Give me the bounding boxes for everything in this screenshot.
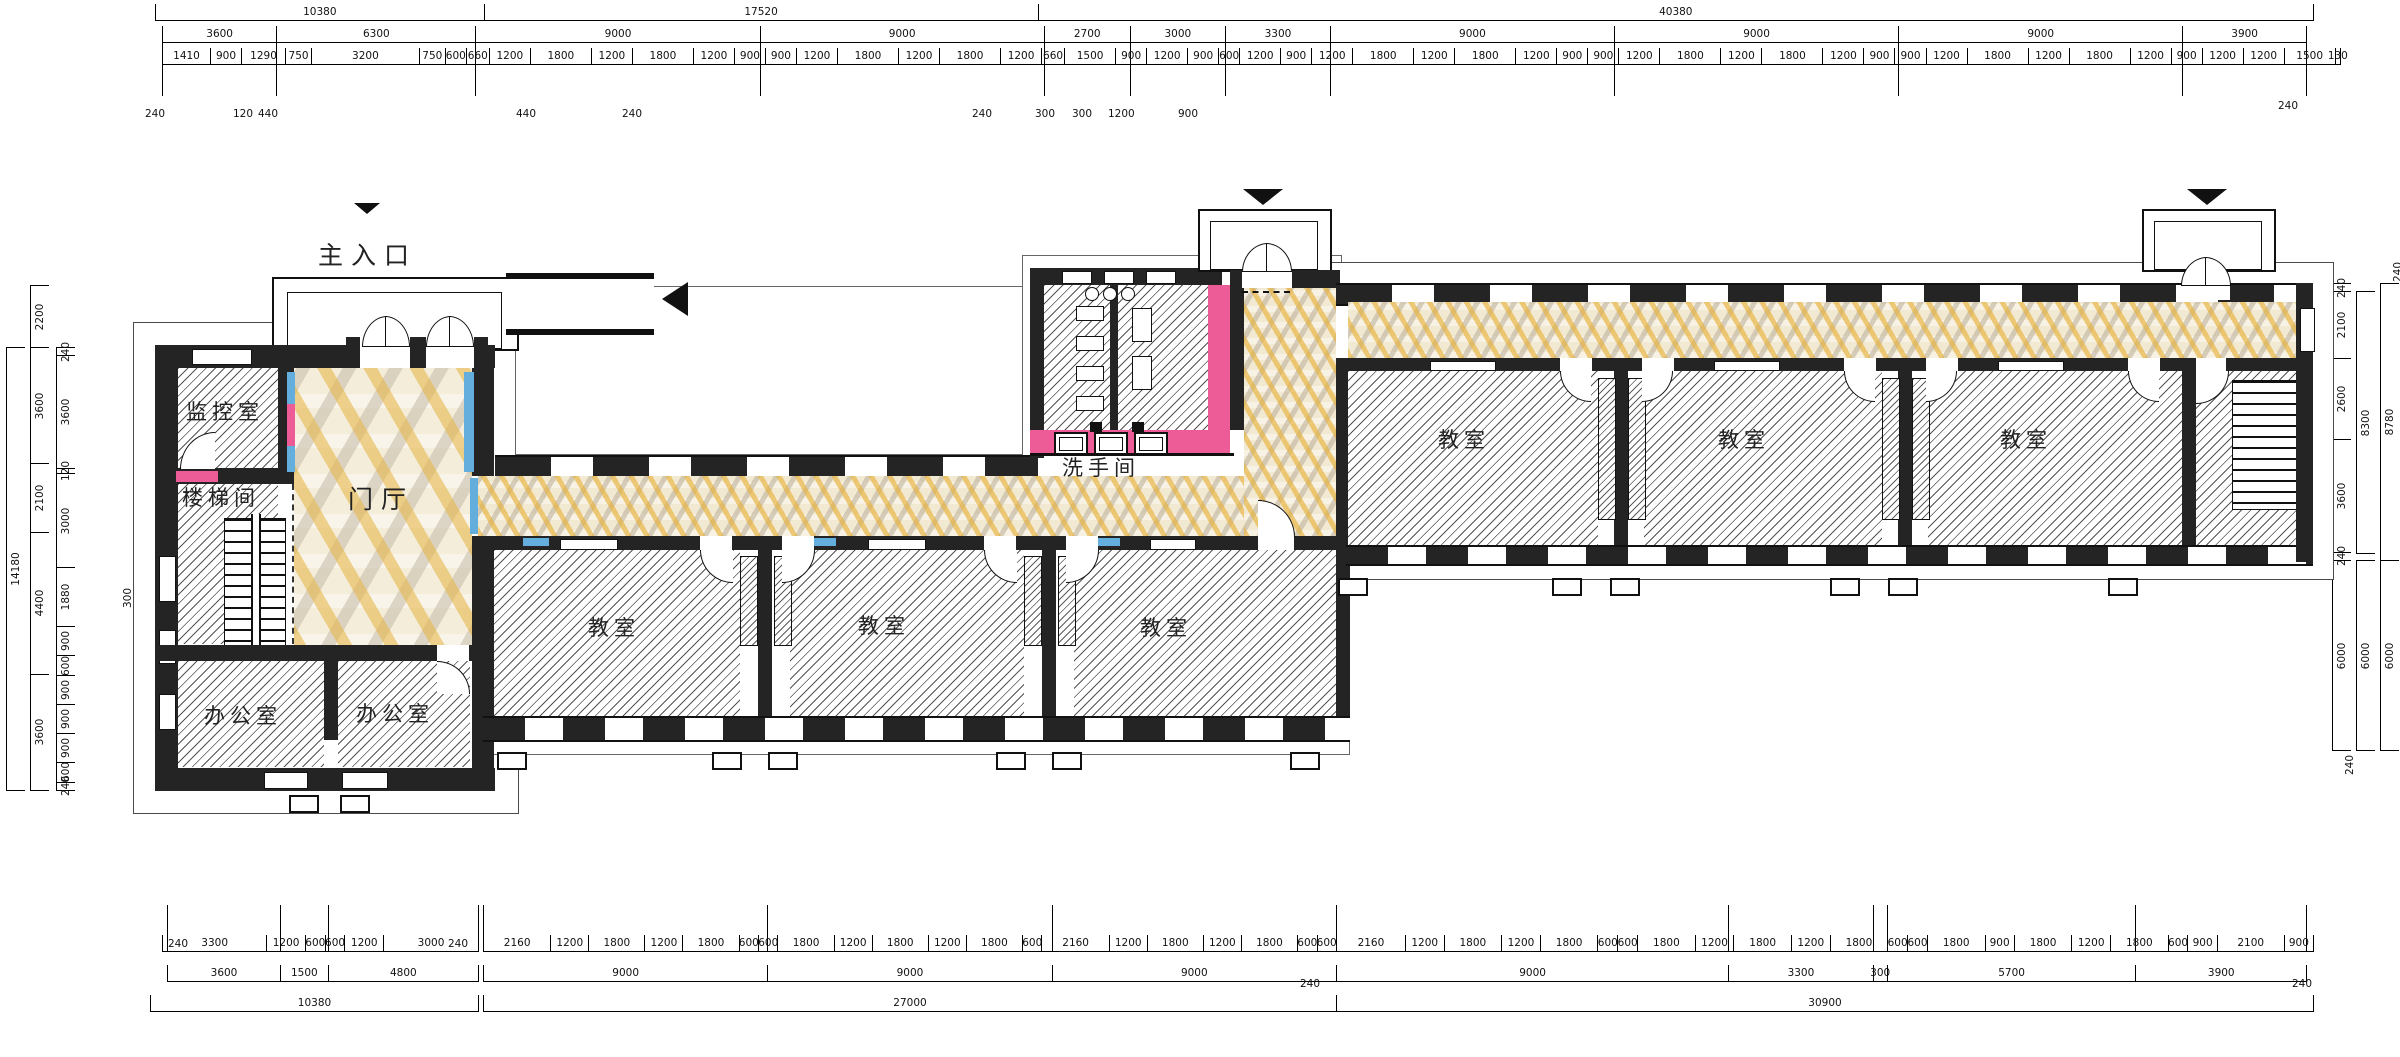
- room-label-classroom: 教室: [2000, 424, 2052, 454]
- dim-segment: 1200: [489, 48, 530, 64]
- dim-segment: 10380: [155, 4, 484, 20]
- column-footing: [768, 752, 798, 770]
- dim-segment: 10380: [150, 995, 478, 1011]
- office-divider-wall: [324, 661, 338, 791]
- dim-segment: 1800: [872, 935, 928, 951]
- window: [868, 539, 926, 550]
- dim-segment: 1800: [1352, 48, 1413, 64]
- dim-segment: 1200: [1515, 48, 1556, 64]
- dim-segment: 1800: [2110, 935, 2168, 951]
- door-opening: [984, 536, 1016, 550]
- floor-plan-canvas: 103801752040380 360063009000900027003000…: [0, 0, 2400, 1057]
- dim-offset: 1200: [1108, 108, 1135, 120]
- dim-segment: 2160: [483, 935, 550, 951]
- dim-segment: 1800: [1147, 935, 1203, 951]
- window: [342, 772, 388, 789]
- dim-segment: 600: [739, 935, 758, 951]
- dim-segment: 1200: [928, 935, 966, 951]
- door-opening: [1258, 536, 1294, 550]
- entrance-arrow-icon: [354, 203, 380, 214]
- dim-segment: 3000: [57, 473, 75, 567]
- dim-segment: 900: [1115, 48, 1146, 64]
- dim-offset: 240: [168, 938, 188, 950]
- door-opening: [2196, 358, 2226, 371]
- dim-segment: 1800: [1637, 935, 1695, 951]
- dim-right-outer: 8780: [2380, 283, 2399, 561]
- dim-offset: 240: [972, 108, 992, 120]
- dim-bottom-total-right: 30900: [1336, 995, 2314, 1012]
- dim-segment: 600: [1617, 935, 1637, 951]
- dim-segment: 9000: [1336, 965, 1728, 981]
- middle-corridor-floor: [478, 476, 1336, 536]
- door-opening: [1066, 536, 1098, 550]
- dim-segment: 1200: [1239, 48, 1280, 64]
- window: [264, 772, 308, 789]
- dim-segment: 2200: [31, 285, 49, 347]
- dim-segment: 900: [2171, 48, 2202, 64]
- dim-offset: 120: [233, 108, 253, 120]
- dim-segment: 3000: [1130, 26, 1225, 42]
- dim-segment: 9000: [483, 965, 767, 981]
- room-label-lobby: 门厅: [348, 480, 414, 516]
- dim-segment: 600: [2168, 935, 2188, 951]
- dim-bottom-tier2-mid: 900090009000: [483, 965, 1337, 982]
- dim-segment: 1200: [898, 48, 939, 64]
- dim-segment: 9000: [1052, 965, 1336, 981]
- dim-segment: 3300: [1225, 26, 1330, 42]
- dim-segment: 3600: [31, 674, 49, 790]
- dim-segment: 2160: [1041, 935, 1108, 951]
- dim-segment: 1200: [1822, 48, 1863, 64]
- dim-segment: 900: [765, 48, 796, 64]
- dim-offset: 240: [2278, 100, 2298, 112]
- dim-segment: 30900: [1336, 995, 2313, 1011]
- dim-segment: 2100: [2333, 291, 2351, 357]
- dim-segment: 1200: [1926, 48, 1967, 64]
- dim-segment: 1800: [530, 48, 591, 64]
- entrance-arrow-icon: [2187, 189, 2227, 205]
- dim-offset: 240: [2292, 978, 2312, 990]
- dim-segment: 900: [57, 626, 75, 655]
- room-label-office: 办公室: [356, 698, 434, 728]
- dim-segment: 1800: [682, 935, 738, 951]
- dim-segment: 900: [2187, 935, 2216, 951]
- right-corridor-floor: [1348, 302, 2298, 358]
- window: [1430, 361, 1496, 371]
- dim-segment: 3600: [31, 347, 49, 463]
- dim-segment: 1800: [966, 935, 1022, 951]
- classroom-floor: [1074, 550, 1336, 716]
- dim-segment: 1200: [1413, 48, 1454, 64]
- classroom-floor: [1348, 371, 1598, 545]
- dim-segment: 3600: [57, 355, 75, 468]
- dim-segment: 600: [1887, 935, 1907, 951]
- dim-segment: 1200: [1109, 935, 1147, 951]
- dim-segment: 1200: [344, 935, 383, 951]
- dim-segment: 600: [325, 935, 345, 951]
- dim-left-canopy: 2200: [30, 285, 49, 348]
- window: [1062, 271, 1092, 284]
- door-post: [474, 337, 488, 368]
- dim-segment: 1200: [2028, 48, 2069, 64]
- dim-left-detail: 240360012030001880900600900900900600240: [56, 347, 75, 791]
- dim-segment: 750: [285, 48, 311, 64]
- dim-segment: 900: [210, 48, 241, 64]
- dim-segment: 40380: [1038, 4, 2313, 20]
- dim-offset: 240: [2392, 262, 2400, 282]
- dim-segment: 2700: [1044, 26, 1130, 42]
- dim-segment: 600: [445, 48, 466, 64]
- dim-segment: 1800: [1761, 48, 1822, 64]
- glazing-band: [523, 538, 549, 546]
- dim-offset: 240: [448, 938, 468, 950]
- dim-offset: 300: [1035, 108, 1055, 120]
- dim-top-tier2: 3600630090009000270030003300900090009000…: [162, 26, 2307, 43]
- dim-segment: 2160: [1336, 935, 1405, 951]
- room-label-stairwell: 楼梯间: [182, 482, 260, 512]
- right-west-wall: [1336, 358, 1348, 558]
- dim-segment: 2100: [31, 463, 49, 531]
- dim-segment: 900: [1587, 48, 1618, 64]
- dim-segment: 240: [57, 782, 75, 790]
- window: [1998, 361, 2064, 371]
- dim-segment: 14180: [7, 347, 25, 790]
- classroom-divider-wall: [1042, 550, 1056, 716]
- toilet-fixture: [1132, 308, 1152, 342]
- room-label-classroom: 教室: [1438, 424, 1490, 454]
- room-label-classroom: 教室: [588, 612, 640, 642]
- column-footing: [1830, 578, 1860, 596]
- toilet-fixture: [1076, 396, 1104, 411]
- dim-segment: 1800: [777, 935, 833, 951]
- door-opening: [1560, 358, 1592, 371]
- window: [560, 539, 618, 550]
- column-footing: [712, 752, 742, 770]
- room-label-classroom: 教室: [1718, 424, 1770, 454]
- pier: [1024, 556, 1042, 646]
- dim-segment: 1200: [266, 935, 305, 951]
- dim-right-lower: 6000: [2332, 560, 2351, 751]
- column-footing: [1888, 578, 1918, 596]
- pier: [1598, 378, 1616, 520]
- window: [1150, 539, 1196, 550]
- door-opening: [700, 536, 732, 550]
- dim-left-axes: 3600210044003600: [30, 347, 49, 791]
- dim-segment: 600: [758, 935, 777, 951]
- dim-segment: 600: [57, 655, 75, 675]
- ramp-direction-arrow-icon: [662, 282, 688, 316]
- window: [2300, 308, 2315, 352]
- dim-segment: 3600: [2333, 439, 2351, 552]
- dim-segment: 900: [57, 733, 75, 762]
- fixture-icon: [1085, 287, 1099, 301]
- dim-segment: 240: [2333, 552, 2351, 560]
- dim-segment: 900: [57, 675, 75, 704]
- dim-segment: 8300: [2357, 291, 2375, 553]
- column-footing: [1552, 578, 1582, 596]
- dim-offset: 240: [1300, 978, 1320, 990]
- dim-segment: 600: [1597, 935, 1617, 951]
- door-opening: [1926, 358, 1958, 371]
- dim-bottom-tier1-right: 2160120018001200180060060018001200180012…: [1336, 935, 2314, 952]
- dim-segment: 27000: [483, 995, 1336, 1011]
- dim-top-tier1: 103801752040380: [155, 4, 2314, 21]
- door-opening: [2128, 358, 2160, 371]
- dim-segment: 900: [1894, 48, 1925, 64]
- dim-segment: 1200: [1501, 935, 1540, 951]
- dim-segment: 9000: [1614, 26, 1898, 42]
- door-opening: [1844, 358, 1876, 371]
- pink-door-band: [287, 404, 295, 446]
- dim-segment: 240: [57, 347, 75, 355]
- window: [159, 556, 176, 602]
- dim-segment: 6300: [276, 26, 475, 42]
- dim-segment: 1200: [1203, 935, 1241, 951]
- dim-segment: 1200: [796, 48, 837, 64]
- stair-west-wall: [2182, 371, 2196, 545]
- dim-segment: 1800: [939, 48, 1000, 64]
- column-footing: [1290, 752, 1320, 770]
- dim-offset: 900: [1178, 108, 1198, 120]
- dim-segment: 1200: [1146, 48, 1187, 64]
- dim-segment: 9000: [1898, 26, 2182, 42]
- dim-segment: 1800: [1927, 935, 1985, 951]
- column-footing: [1052, 752, 1082, 770]
- dim-top-tier3: 1410900129075032007506006601200180012001…: [162, 48, 2341, 65]
- dim-segment: 900: [1863, 48, 1894, 64]
- dim-segment: 1200: [693, 48, 734, 64]
- washroom-stalls-floor: [1044, 285, 1208, 430]
- column-footing: [1610, 578, 1640, 596]
- room-label-classroom: 教室: [1140, 612, 1192, 642]
- dim-segment: 1800: [1241, 935, 1297, 951]
- stair-rail: [251, 514, 261, 650]
- stair-opening-dashed: [292, 484, 294, 644]
- dim-right-outer-lower: 6000: [2380, 560, 2399, 751]
- entrance-opening: [2180, 285, 2230, 300]
- dim-segment: 600: [1218, 48, 1239, 64]
- dim-segment: 1200: [1791, 935, 1830, 951]
- pier: [740, 556, 758, 646]
- window: [192, 349, 252, 365]
- dim-segment: 900: [57, 704, 75, 733]
- room-label-monitor: 监控室: [186, 396, 264, 426]
- dim-segment: 3900: [2182, 26, 2306, 42]
- dim-segment: 3300: [1728, 965, 1872, 981]
- main-entrance-label: 主入口: [318, 236, 417, 272]
- dim-segment: 4400: [31, 532, 49, 674]
- dim-segment: 1800: [1733, 935, 1791, 951]
- dim-offset: 240: [622, 108, 642, 120]
- dim-offset: 240: [2344, 755, 2356, 775]
- classroom-divider-wall: [758, 550, 772, 716]
- pier: [1882, 378, 1900, 520]
- dim-offset: 300: [1072, 108, 1092, 120]
- toilet-fixture: [1076, 306, 1104, 321]
- dim-segment: 1800: [588, 935, 644, 951]
- washroom-pink-wall-band: [1208, 285, 1230, 430]
- room-label-classroom: 教室: [858, 610, 910, 640]
- door-block: [1132, 422, 1144, 432]
- dim-segment: 900: [734, 48, 765, 64]
- dim-bottom-total-left: 10380: [150, 995, 479, 1012]
- dim-segment: 600: [1317, 935, 1336, 951]
- fixture-icon: [1103, 287, 1117, 301]
- door-post: [410, 337, 426, 368]
- dim-segment: 1800: [2069, 48, 2130, 64]
- column-footing: [996, 752, 1026, 770]
- window: [1714, 361, 1780, 371]
- classroom-divider-wall: [1614, 371, 1628, 545]
- dim-offset: 440: [258, 108, 278, 120]
- dim-segment: 1200: [2071, 935, 2110, 951]
- dim-segment: 9000: [475, 26, 759, 42]
- window: [1146, 271, 1176, 284]
- dim-segment: 4800: [328, 965, 478, 981]
- middle-south-wall-windows: [483, 716, 1350, 742]
- dim-segment: 900: [1280, 48, 1311, 64]
- dim-segment: 1200: [591, 48, 632, 64]
- dim-segment: 1500: [280, 965, 328, 981]
- window: [1104, 271, 1134, 284]
- dim-bottom-tier1-mid: 2160120018001200180060060018001200180012…: [483, 935, 1337, 952]
- glazing-band: [470, 478, 478, 534]
- dim-segment: 1200: [1311, 48, 1352, 64]
- door-opening: [437, 645, 469, 661]
- dim-segment: 3200: [311, 48, 419, 64]
- dim-segment: 130: [2335, 48, 2340, 64]
- dim-segment: 1800: [1454, 48, 1515, 64]
- dim-segment: 600: [1907, 935, 1927, 951]
- dim-right-mid-lower: 6000: [2356, 560, 2375, 751]
- dim-bottom-tier1-left: 3300120060060012003000: [162, 935, 479, 952]
- dim-segment: 300: [1873, 965, 1887, 981]
- dim-segment: 8780: [2381, 283, 2399, 560]
- dim-segment: 9000: [760, 26, 1044, 42]
- dim-segment: 1290: [241, 48, 285, 64]
- dim-segment: 600: [1022, 935, 1041, 951]
- dim-right-detail: 240210026003600240: [2332, 283, 2351, 561]
- entrance-ramp: [506, 273, 654, 335]
- dim-segment: 1200: [834, 935, 872, 951]
- dim-segment: 1200: [1720, 48, 1761, 64]
- entrance-arrow-icon: [1243, 189, 1283, 205]
- dim-segment: 2600: [2333, 358, 2351, 440]
- dim-segment: 1200: [2202, 48, 2243, 64]
- dim-segment: 1880: [57, 567, 75, 626]
- dim-segment: 1800: [632, 48, 693, 64]
- dim-segment: 600: [305, 935, 325, 951]
- dim-segment: 1800: [1830, 935, 1888, 951]
- dim-segment: 1200: [1405, 935, 1444, 951]
- column-footing: [340, 795, 370, 813]
- dim-segment: 900: [1556, 48, 1587, 64]
- window: [159, 694, 176, 730]
- toilet-fixture: [1076, 336, 1104, 351]
- dim-segment: 1500: [1064, 48, 1115, 64]
- middle-east-wall: [1336, 536, 1350, 738]
- dim-segment: 750: [419, 48, 445, 64]
- dim-segment: 17520: [484, 4, 1038, 20]
- dim-segment: 5700: [1887, 965, 2136, 981]
- dim-segment: 2100: [2217, 935, 2284, 951]
- dim-segment: 1200: [1618, 48, 1659, 64]
- dim-offset: 440: [516, 108, 536, 120]
- dim-segment: 1800: [1540, 935, 1598, 951]
- dim-segment: 600: [1297, 935, 1316, 951]
- vestibule-floor: [1244, 285, 1336, 536]
- door-block: [1090, 422, 1102, 432]
- door-opening: [324, 740, 338, 768]
- dim-segment: 6000: [2381, 560, 2399, 750]
- dim-segment: 660: [466, 48, 489, 64]
- dim-segment: 900: [1187, 48, 1218, 64]
- dim-segment: 9000: [767, 965, 1051, 981]
- dim-segment: 9000: [1330, 26, 1614, 42]
- dim-segment: 1800: [837, 48, 898, 64]
- toilet-fixture: [1132, 356, 1152, 390]
- dim-segment: 900: [1985, 935, 2014, 951]
- threshold-dashed: [1242, 291, 1290, 293]
- dim-segment: 3600: [162, 26, 276, 42]
- pink-door-band: [176, 471, 218, 482]
- dim-segment: 1200: [1000, 48, 1041, 64]
- dim-segment: 1800: [1967, 48, 2028, 64]
- stair-flight: [2232, 380, 2298, 510]
- dim-bottom-total-mid: 27000: [483, 995, 1337, 1012]
- dim-segment: 3600: [167, 965, 280, 981]
- left-block-east-wall-lower: [472, 536, 494, 791]
- left-block-east-wall-upper: [472, 368, 494, 476]
- glazing-band: [464, 372, 474, 472]
- dim-right-mid: 8300: [2356, 291, 2375, 554]
- dim-segment: 3900: [2135, 965, 2306, 981]
- column-footing: [1338, 578, 1368, 596]
- column-footing: [289, 795, 319, 813]
- dim-segment: 1800: [1444, 935, 1502, 951]
- dim-segment: 1800: [1659, 48, 1720, 64]
- dim-offset: 240: [145, 108, 165, 120]
- column-footing: [497, 752, 527, 770]
- dim-segment: 1200: [2243, 48, 2284, 64]
- door-opening: [1642, 358, 1674, 371]
- column-footing: [2108, 578, 2138, 596]
- door-opening: [782, 536, 814, 550]
- stall-divider-wall: [1110, 285, 1118, 430]
- toilet-fixture: [1076, 366, 1104, 381]
- dim-segment: 6000: [2357, 560, 2375, 750]
- dim-segment: 900: [2284, 935, 2313, 951]
- dim-segment: 1200: [2130, 48, 2171, 64]
- dim-segment: 660: [1041, 48, 1064, 64]
- dim-segment: 1410: [162, 48, 210, 64]
- dim-segment: 1200: [1695, 935, 1734, 951]
- door-post: [346, 337, 360, 368]
- dim-segment: 6000: [2333, 560, 2351, 750]
- dim-left-total: 14180: [6, 347, 25, 791]
- dim-bottom-tier2-right: 9000330030057003900: [1336, 965, 2307, 982]
- dim-bottom-tier2-left: 360015004800: [167, 965, 479, 982]
- room-label-office: 办公室: [204, 700, 282, 730]
- door-opening: [1242, 270, 1292, 288]
- classroom-floor: [1644, 371, 1882, 545]
- fixture-icon: [1121, 287, 1135, 301]
- dim-segment: 1200: [644, 935, 682, 951]
- dim-segment: 240: [2333, 283, 2351, 291]
- dim-segment: 1800: [2014, 935, 2072, 951]
- room-label-washroom: 洗手间: [1062, 452, 1140, 482]
- classroom-divider-wall: [1898, 371, 1912, 545]
